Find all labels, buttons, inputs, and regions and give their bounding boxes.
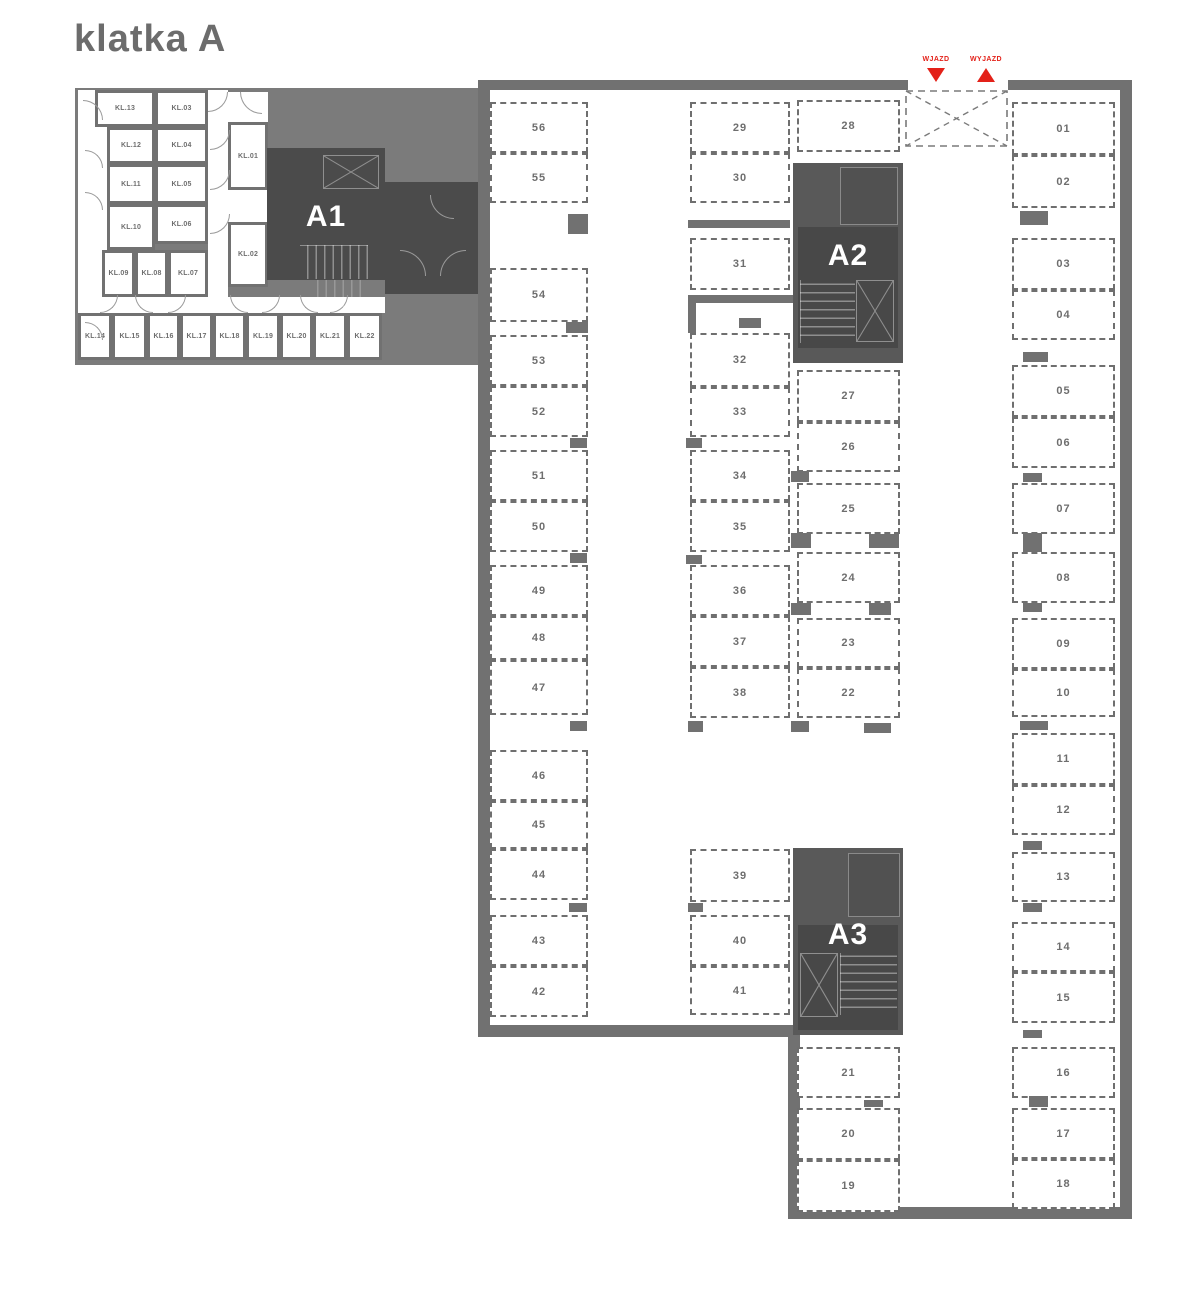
storage-room-kl-16: KL.16 [147, 313, 180, 360]
storage-room-label: KL.04 [171, 142, 191, 149]
staircase-block-a1: A1 [267, 148, 385, 280]
pillar [570, 438, 587, 448]
storage-room-label: KL.12 [121, 142, 141, 149]
parking-space-10: 10 [1012, 669, 1115, 717]
staircase-block-a3: A3 [793, 848, 903, 1035]
parking-space-54: 54 [490, 268, 588, 322]
parking-space-label: 43 [532, 935, 546, 947]
parking-space-label: 07 [1056, 503, 1070, 515]
stairs-icon [800, 280, 855, 343]
storage-room-kl-20: KL.20 [280, 313, 313, 360]
parking-space-label: 13 [1056, 871, 1070, 883]
parking-space-36: 36 [690, 565, 790, 616]
parking-space-08: 08 [1012, 552, 1115, 603]
parking-space-label: 06 [1056, 437, 1070, 449]
storage-room-label: KL.06 [171, 221, 191, 228]
parking-space-45: 45 [490, 801, 588, 849]
parking-space-label: 44 [532, 869, 546, 881]
parking-space-label: 22 [841, 687, 855, 699]
parking-space-23: 23 [797, 618, 900, 668]
storage-room-label: KL.08 [141, 270, 161, 277]
storage-room-label: KL.13 [115, 105, 135, 112]
storage-room-kl-11: KL.11 [107, 164, 155, 204]
parking-space-14: 14 [1012, 922, 1115, 972]
pillar [570, 721, 587, 731]
parking-space-40: 40 [690, 915, 790, 966]
parking-space-15: 15 [1012, 972, 1115, 1023]
parking-space-47: 47 [490, 660, 588, 715]
parking-space-label: 34 [733, 470, 747, 482]
pillar [1029, 1096, 1048, 1107]
storage-room-label: KL.09 [108, 270, 128, 277]
parking-space-label: 36 [733, 585, 747, 597]
pillar [688, 903, 703, 912]
parking-space-24: 24 [797, 552, 900, 603]
parking-space-label: 15 [1056, 992, 1070, 1004]
parking-space-41: 41 [690, 966, 790, 1015]
corridor [228, 190, 268, 222]
wall [478, 80, 908, 90]
parking-space-19: 19 [797, 1160, 900, 1212]
parking-space-16: 16 [1012, 1047, 1115, 1098]
parking-space-label: 24 [841, 572, 855, 584]
parking-space-label: 08 [1056, 572, 1070, 584]
pillar [1023, 841, 1042, 850]
pillar [739, 318, 761, 328]
storage-room-label: KL.07 [178, 270, 198, 277]
pillar [568, 214, 588, 234]
parking-space-34: 34 [690, 450, 790, 501]
parking-space-30: 30 [690, 153, 790, 203]
storage-room-label: KL.20 [286, 333, 306, 340]
pillar [1020, 211, 1048, 225]
pillar [869, 603, 891, 615]
parking-space-label: 01 [1056, 123, 1070, 135]
storage-room-kl-12: KL.12 [107, 127, 155, 164]
parking-space-label: 29 [733, 122, 747, 134]
wall [688, 295, 696, 333]
parking-space-07: 07 [1012, 483, 1115, 534]
parking-space-02: 02 [1012, 155, 1115, 208]
pillar [570, 553, 587, 563]
parking-space-label: 47 [532, 682, 546, 694]
parking-space-label: 31 [733, 258, 747, 270]
parking-space-label: 05 [1056, 385, 1070, 397]
parking-space-03: 03 [1012, 238, 1115, 290]
floor-plan-canvas: klatka A KL.13KL.03KL.12KL.04KL.11KL.05K… [0, 0, 1201, 1293]
vestibule-room [840, 167, 898, 225]
storage-room-label: KL.19 [253, 333, 273, 340]
parking-space-05: 05 [1012, 365, 1115, 417]
parking-space-51: 51 [490, 450, 588, 501]
storage-room-kl-08: KL.08 [135, 250, 168, 297]
stairs-icon [300, 245, 368, 279]
pillar [1023, 533, 1042, 552]
pillar [1023, 603, 1042, 612]
storage-room-label: KL.10 [121, 224, 141, 231]
wall [478, 1025, 800, 1037]
parking-space-17: 17 [1012, 1108, 1115, 1159]
parking-space-49: 49 [490, 565, 588, 616]
parking-space-48: 48 [490, 616, 588, 660]
storage-room-label: KL.01 [238, 153, 258, 160]
wall [688, 295, 795, 303]
vestibule-room [848, 853, 900, 917]
parking-space-label: 30 [733, 172, 747, 184]
parking-space-37: 37 [690, 616, 790, 667]
parking-space-label: 55 [532, 172, 546, 184]
page-title: klatka A [74, 18, 226, 61]
parking-space-28: 28 [797, 100, 900, 152]
parking-space-label: 38 [733, 687, 747, 699]
parking-space-label: 09 [1056, 638, 1070, 650]
pillar [1023, 473, 1042, 482]
pillar [864, 723, 891, 733]
pillar [1023, 1030, 1042, 1038]
parking-space-label: 48 [532, 632, 546, 644]
elevator-icon [800, 953, 838, 1017]
parking-space-label: 42 [532, 986, 546, 998]
storage-room-kl-06: KL.06 [155, 204, 208, 244]
storage-room-kl-19: KL.19 [246, 313, 280, 360]
staircase-block-a2: A2 [793, 163, 903, 363]
parking-space-01: 01 [1012, 102, 1115, 155]
parking-space-25: 25 [797, 483, 900, 534]
entry-arrow-icon [927, 68, 945, 82]
parking-space-label: 19 [841, 1180, 855, 1192]
exit-arrow-icon [977, 68, 995, 82]
pillar [1023, 352, 1048, 362]
parking-space-52: 52 [490, 386, 588, 437]
parking-space-label: 33 [733, 406, 747, 418]
wall [1008, 80, 1132, 90]
parking-space-43: 43 [490, 915, 588, 966]
pillar [791, 471, 809, 482]
parking-space-label: 41 [733, 985, 747, 997]
parking-space-13: 13 [1012, 852, 1115, 902]
staircase-a3-label: A3 [793, 918, 903, 952]
storage-room-kl-21: KL.21 [313, 313, 347, 360]
parking-space-label: 28 [841, 120, 855, 132]
storage-room-kl-10: KL.10 [107, 204, 155, 250]
wall [1120, 80, 1132, 1219]
storage-room-label: KL.02 [238, 251, 258, 258]
storage-room-label: KL.18 [219, 333, 239, 340]
parking-space-label: 46 [532, 770, 546, 782]
storage-room-kl-03: KL.03 [155, 90, 208, 127]
parking-space-20: 20 [797, 1108, 900, 1160]
exit-label: WYJAZD [956, 56, 1016, 63]
parking-space-label: 04 [1056, 309, 1070, 321]
parking-space-33: 33 [690, 387, 790, 437]
storage-room-label: KL.16 [153, 333, 173, 340]
storage-room-label: KL.21 [320, 333, 340, 340]
parking-space-label: 27 [841, 390, 855, 402]
parking-space-04: 04 [1012, 290, 1115, 340]
parking-space-39: 39 [690, 849, 790, 902]
parking-space-label: 35 [733, 521, 747, 533]
parking-space-label: 50 [532, 521, 546, 533]
storage-room-kl-02: KL.02 [228, 222, 268, 287]
pillar [688, 721, 703, 732]
parking-space-label: 56 [532, 122, 546, 134]
parking-space-label: 25 [841, 503, 855, 515]
parking-space-29: 29 [690, 102, 790, 153]
parking-space-label: 52 [532, 406, 546, 418]
ramp-area [905, 90, 1008, 147]
corridor [208, 90, 228, 313]
parking-space-12: 12 [1012, 785, 1115, 835]
parking-space-label: 21 [841, 1067, 855, 1079]
staircase-a1-label: A1 [267, 200, 385, 234]
parking-space-label: 40 [733, 935, 747, 947]
parking-space-31: 31 [690, 238, 790, 290]
parking-space-label: 03 [1056, 258, 1070, 270]
elevator-icon [323, 155, 379, 189]
parking-space-35: 35 [690, 501, 790, 552]
storage-room-kl-17: KL.17 [180, 313, 213, 360]
parking-space-38: 38 [690, 667, 790, 718]
storage-room-kl-01: KL.01 [228, 122, 268, 190]
parking-space-53: 53 [490, 335, 588, 386]
storage-room-kl-05: KL.05 [155, 164, 208, 204]
staircase-a2-label: A2 [793, 239, 903, 273]
storage-room-label: KL.22 [354, 333, 374, 340]
storage-room-kl-13: KL.13 [95, 90, 155, 127]
storage-room-kl-04: KL.04 [155, 127, 208, 164]
parking-space-56: 56 [490, 102, 588, 153]
parking-space-44: 44 [490, 849, 588, 900]
parking-space-42: 42 [490, 966, 588, 1017]
parking-space-46: 46 [490, 750, 588, 801]
parking-space-label: 37 [733, 636, 747, 648]
parking-space-label: 51 [532, 470, 546, 482]
storage-room-label: KL.11 [121, 181, 141, 188]
pillar [869, 534, 899, 548]
parking-space-label: 02 [1056, 176, 1070, 188]
parking-space-label: 26 [841, 441, 855, 453]
parking-space-label: 16 [1056, 1067, 1070, 1079]
parking-space-label: 53 [532, 355, 546, 367]
parking-space-label: 20 [841, 1128, 855, 1140]
wall [478, 80, 490, 1037]
stairs-icon [310, 280, 368, 308]
parking-space-32: 32 [690, 333, 790, 387]
parking-space-label: 45 [532, 819, 546, 831]
elevator-icon [856, 280, 894, 342]
pillar [791, 721, 809, 732]
pillar [1020, 721, 1048, 730]
parking-space-label: 11 [1057, 753, 1071, 765]
pillar [686, 555, 702, 564]
pillar [566, 322, 588, 333]
parking-space-27: 27 [797, 370, 900, 422]
pillar [569, 903, 587, 912]
pillar [791, 533, 811, 548]
stairs-icon [840, 953, 897, 1015]
parking-space-label: 32 [733, 354, 747, 366]
parking-space-22: 22 [797, 668, 900, 718]
parking-space-label: 23 [841, 637, 855, 649]
parking-space-label: 10 [1056, 687, 1070, 699]
parking-space-label: 17 [1056, 1128, 1070, 1140]
pillar [1023, 903, 1042, 912]
parking-space-label: 12 [1056, 804, 1070, 816]
storage-room-label: KL.17 [186, 333, 206, 340]
storage-room-label: KL.05 [171, 181, 191, 188]
parking-space-label: 54 [532, 289, 546, 301]
parking-space-55: 55 [490, 153, 588, 203]
wall [688, 220, 790, 228]
parking-space-label: 49 [532, 585, 546, 597]
pillar [686, 438, 702, 448]
storage-room-kl-15: KL.15 [112, 313, 147, 360]
storage-room-label: KL.15 [119, 333, 139, 340]
parking-space-label: 39 [733, 870, 747, 882]
parking-space-26: 26 [797, 422, 900, 472]
storage-room-kl-09: KL.09 [102, 250, 135, 297]
storage-room-label: KL.03 [171, 105, 191, 112]
parking-space-21: 21 [797, 1047, 900, 1098]
pillar [864, 1100, 883, 1107]
storage-room-kl-07: KL.07 [168, 250, 208, 297]
parking-space-09: 09 [1012, 618, 1115, 669]
parking-space-06: 06 [1012, 417, 1115, 468]
pillar [791, 603, 811, 615]
parking-space-50: 50 [490, 501, 588, 552]
parking-space-label: 14 [1056, 941, 1070, 953]
parking-space-11: 11 [1012, 733, 1115, 785]
storage-room-kl-18: KL.18 [213, 313, 246, 360]
storage-room-kl-22: KL.22 [347, 313, 382, 360]
parking-space-18: 18 [1012, 1159, 1115, 1209]
parking-space-label: 18 [1056, 1178, 1070, 1190]
